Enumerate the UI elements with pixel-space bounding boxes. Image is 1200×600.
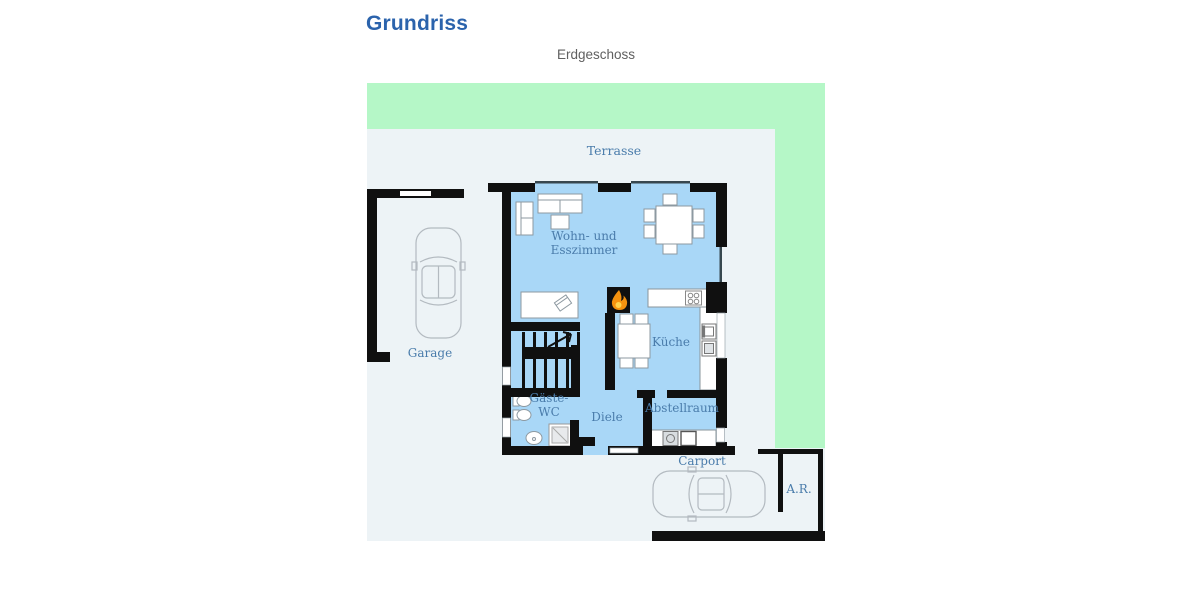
label-terrasse: Terrasse [587,144,641,158]
washer-icon [663,432,678,446]
side-window [720,247,723,282]
entry-door-opening [583,446,608,455]
shower-icon [549,424,571,446]
label-gaeste-wc-line2: WC [530,406,569,420]
label-wohn-esszimmer-line2: Esszimmer [551,244,618,258]
label-gaeste-wc: Gäste- WC [530,392,569,419]
label-diele: Diele [591,411,623,425]
washbasin-icon [526,432,542,445]
label-gaeste-wc-line1: Gäste- [530,392,569,406]
label-ar: A.R. [786,483,811,497]
oven-icon [702,324,716,339]
label-carport: Carport [678,455,726,469]
floor-plan-drawing [0,0,1200,600]
label-abstellraum: Abstellraum [645,402,719,416]
floor-plan-page: Grundriss Erdgeschoss [0,0,1200,600]
dryer-icon [681,432,696,446]
garage-door [400,191,431,196]
label-garage: Garage [408,347,452,361]
utility-appliances [650,430,716,447]
dishwasher-icon [702,341,716,356]
label-wohn-esszimmer: Wohn- und Esszimmer [551,230,618,257]
label-wohn-esszimmer-line1: Wohn- und [551,230,618,244]
terrace-window [535,181,598,184]
bidet-icon [513,410,531,421]
label-kueche: Küche [652,336,690,350]
toilet-icon [513,396,531,407]
terrace-window [631,181,690,184]
entry-threshold [610,448,638,453]
